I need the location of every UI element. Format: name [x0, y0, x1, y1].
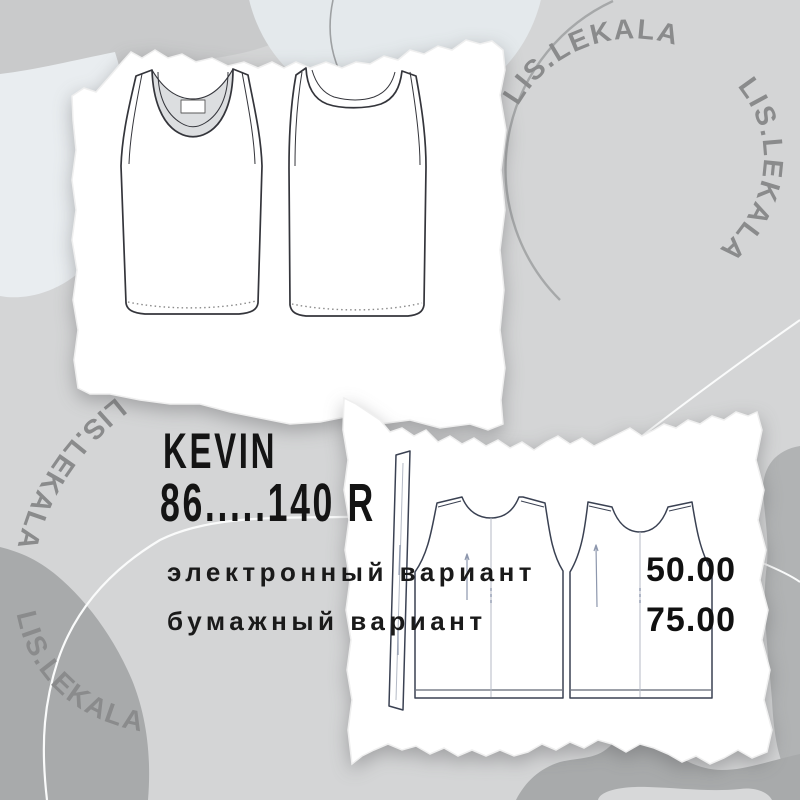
price-electronic: 50.00 — [646, 551, 736, 590]
torn-paper-panel-bottom — [0, 0, 800, 800]
price-paper: 75.00 — [646, 601, 736, 640]
option-label-electronic: электронный вариант — [167, 557, 536, 588]
option-label-paper: бумажный вариант — [167, 606, 487, 637]
pattern-piece-front — [570, 502, 712, 698]
pattern-piece-back — [415, 497, 563, 698]
size-range: 86.....140 R — [160, 476, 376, 530]
product-card: LIS.LEKALA LIS.LEKALA LIS.LEKALA LIS.LEK… — [0, 0, 800, 800]
pattern-title: KEVIN — [163, 426, 277, 476]
